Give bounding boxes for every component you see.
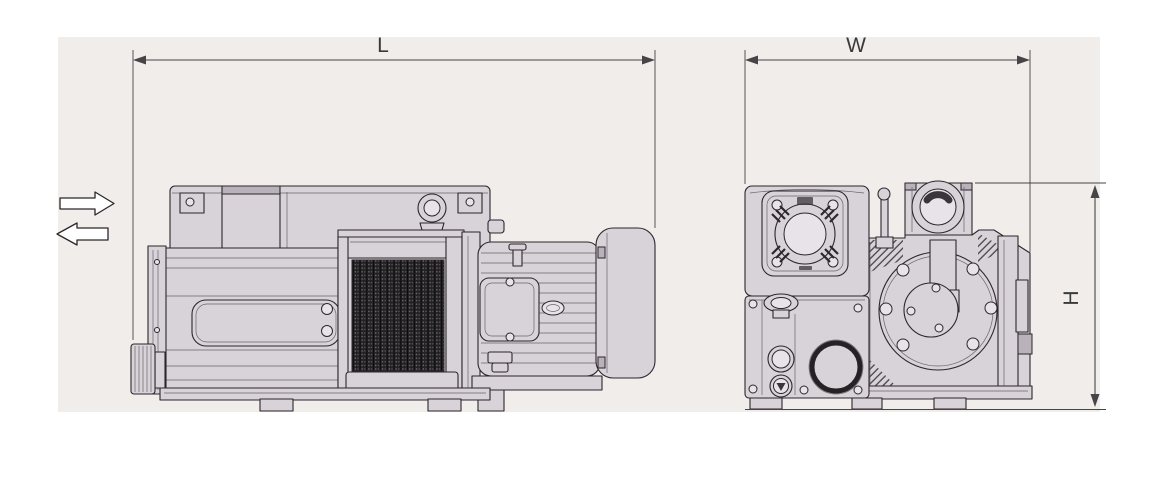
front-base: [858, 386, 1032, 399]
oil-level-glass: [770, 375, 792, 397]
brand-mark: [797, 197, 813, 205]
dimension-height-label: H: [1060, 290, 1083, 305]
cable-gland: [488, 352, 512, 372]
inlet-fitting: [131, 344, 165, 394]
brand-mark: [799, 266, 812, 270]
top-block: [222, 186, 280, 194]
airflow-in-arrow-icon: [60, 192, 114, 215]
grille-mesh: [352, 260, 444, 371]
motor-fan-cover: [596, 228, 655, 378]
gas-ballast-valve: [876, 188, 893, 248]
dimension-length-label: L: [377, 34, 389, 57]
mounting-feet: [160, 388, 490, 411]
exhaust-flange: [762, 191, 848, 276]
pump-side-view: [131, 186, 655, 411]
cooler-grille: [338, 230, 464, 397]
motor-lug: [509, 244, 526, 250]
motor-nameplate: [542, 301, 564, 315]
oil-separator-housing: [148, 246, 346, 394]
motor: [472, 228, 655, 411]
inlet-port: [905, 181, 972, 235]
airflow-arrows: [57, 192, 114, 245]
airflow-out-arrow-icon: [57, 223, 108, 245]
front-mounting-feet: [750, 398, 966, 409]
exhaust-module: [745, 186, 869, 398]
oil-sight-glass: [768, 346, 794, 372]
page: L W H: [0, 0, 1160, 480]
motor-adapter: [462, 232, 480, 394]
pump-dimension-drawing: L W H: [0, 0, 1160, 480]
dimension-width-label: W: [846, 34, 866, 57]
pump-front-view: [745, 181, 1032, 409]
motor-junction-box: [480, 278, 539, 341]
motor-foot: [472, 376, 602, 390]
oil-module: [745, 294, 869, 398]
